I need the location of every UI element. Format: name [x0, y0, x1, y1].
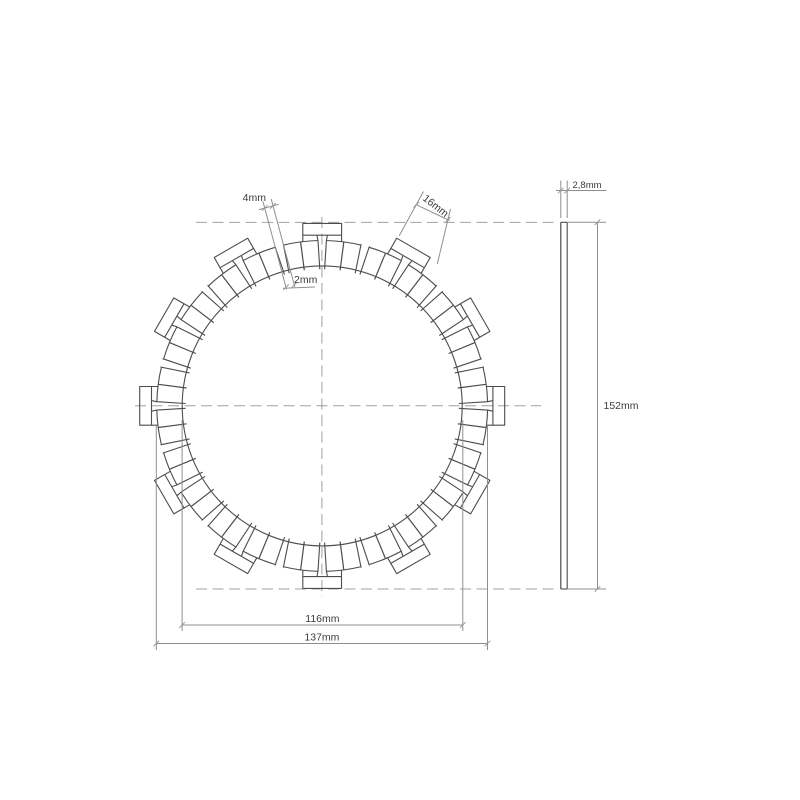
svg-text:137mm: 137mm [304, 632, 339, 644]
svg-text:2,8mm: 2,8mm [573, 180, 602, 191]
svg-text:152mm: 152mm [604, 400, 639, 412]
svg-text:116mm: 116mm [305, 613, 339, 625]
svg-text:2mm: 2mm [294, 274, 318, 286]
svg-text:4mm: 4mm [243, 192, 267, 204]
